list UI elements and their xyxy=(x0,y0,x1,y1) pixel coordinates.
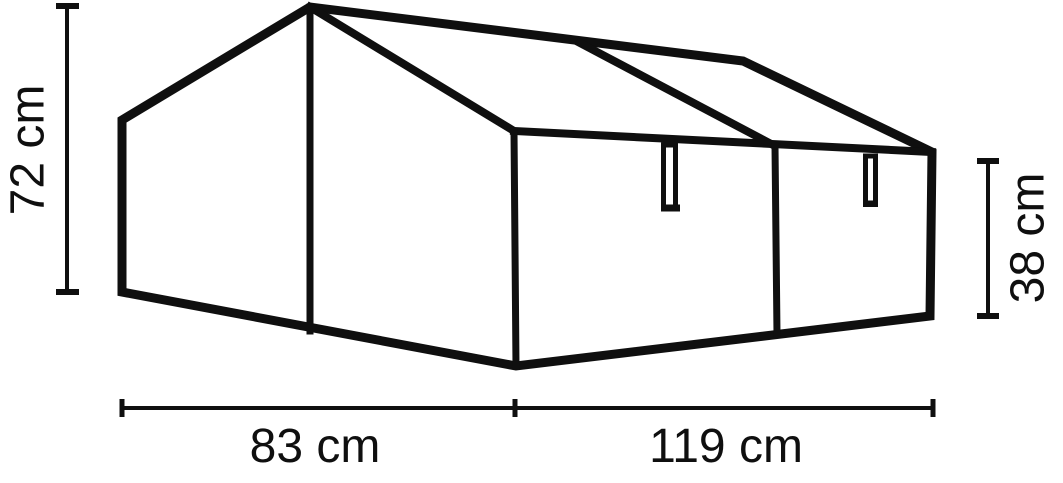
front-mid-post xyxy=(775,146,777,334)
dimension-left-height: 72 cm xyxy=(1,6,79,292)
vent-handle-left-slot xyxy=(664,145,676,207)
eave-line xyxy=(514,131,932,152)
greenhouse-line-drawing: 72 cm 38 cm 83 cm 119 cm xyxy=(0,0,1063,483)
front-left-post xyxy=(514,131,516,366)
greenhouse-outline xyxy=(122,7,932,366)
vent-handle-left-icon xyxy=(661,145,680,208)
vent-handle-right-icon xyxy=(863,156,878,204)
dimension-bottom-left-label: 83 cm xyxy=(250,420,381,473)
dimension-right-label: 38 cm xyxy=(1001,173,1054,304)
vent-handle-right-slot xyxy=(866,156,876,203)
dimension-bottom-widths: 83 cm 119 cm xyxy=(122,399,933,473)
greenhouse-dimension-diagram: 72 cm 38 cm 83 cm 119 cm xyxy=(0,0,1063,483)
dimension-bottom-right-label: 119 cm xyxy=(649,420,803,473)
dimension-right-height: 38 cm xyxy=(977,161,1054,316)
dimension-left-label: 72 cm xyxy=(1,85,54,216)
greenhouse-structure xyxy=(122,7,932,366)
